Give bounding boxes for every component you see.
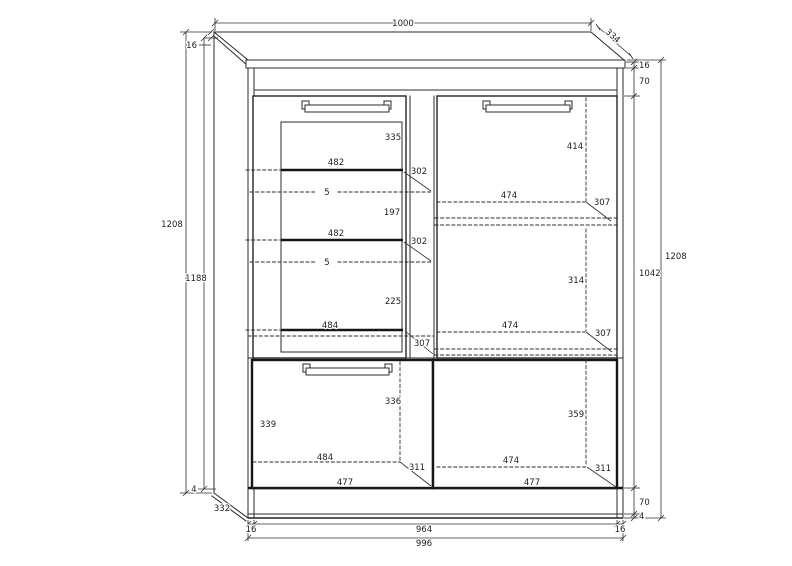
- lower-doors: [252, 360, 617, 488]
- dim-right-top-rail: 70: [639, 77, 650, 87]
- dim-right-door-width: 477: [524, 478, 540, 488]
- dim-glass-shelf1-glass: 5: [324, 188, 329, 198]
- dim-glass-shelf1-width: 482: [328, 158, 344, 168]
- dim-bottom-right-panel: 16: [615, 525, 626, 535]
- dim-top-depth: 334: [603, 27, 622, 45]
- technical-drawing-page: 1000 334 16 1208 1188 4 332 16 70 1042 1…: [0, 0, 792, 566]
- dim-glass-shelf2-width: 482: [328, 229, 344, 239]
- dim-bottom-total-width: 996: [416, 539, 432, 549]
- dim-glass-top-space: 335: [385, 133, 401, 143]
- dim-lowerleft-interior-width: 484: [317, 453, 333, 463]
- dim-lowerleft-door-width: 477: [337, 478, 353, 488]
- dim-right-top-space: 414: [567, 142, 583, 152]
- dim-top-panel-thickness: 16: [186, 41, 197, 51]
- dim-glass-shelf2-glass: 5: [324, 258, 329, 268]
- dim-top-width: 1000: [392, 19, 414, 29]
- dim-right-shelf1-width: 474: [501, 191, 517, 201]
- dim-right-panel-thickness: 16: [639, 61, 650, 71]
- dim-bottom-interior-width: 964: [416, 525, 432, 535]
- top-panel: [214, 32, 625, 68]
- dim-bottom-left-panel: 16: [246, 525, 257, 535]
- dim-left-base-gap: 4: [191, 485, 196, 495]
- dim-lowerleft-side-space: 339: [260, 420, 276, 430]
- dim-right-base-gap: 4: [639, 512, 644, 522]
- dim-right-bottom-rail: 70: [639, 498, 650, 508]
- dim-right-interior-height: 1042: [639, 269, 661, 279]
- dim-right-shelf3-width: 474: [503, 456, 519, 466]
- dim-left-inner-height: 1188: [185, 274, 207, 284]
- dim-right-shelf2-width: 474: [502, 321, 518, 331]
- dim-side-depth: 332: [214, 504, 230, 514]
- dim-glass-bottom-depth: 307: [414, 339, 430, 349]
- dim-lowerleft-top-space: 336: [385, 397, 401, 407]
- cabinet-dimension-drawing: 1000 334 16 1208 1188 4 332 16 70 1042 1…: [0, 0, 792, 566]
- dim-right-shelf2-depth: 307: [595, 329, 611, 339]
- dim-right-bottom-space: 359: [568, 410, 584, 420]
- dim-right-mid-space: 314: [568, 276, 584, 286]
- right-door: [437, 96, 617, 358]
- dim-right-total-height: 1208: [665, 252, 687, 262]
- glass-door: [253, 96, 406, 358]
- dim-lowerleft-depth: 311: [409, 463, 425, 473]
- dim-glass-mid-space: 197: [384, 208, 400, 218]
- dim-right-shelf1-depth: 307: [594, 198, 610, 208]
- dim-glass-bottom-width: 484: [322, 321, 338, 331]
- dim-glass-bottom-space: 225: [385, 297, 401, 307]
- dim-right-shelf3-depth: 311: [595, 464, 611, 474]
- dim-glass-shelf2-depth: 302: [411, 237, 427, 247]
- dim-glass-shelf1-depth: 302: [411, 167, 427, 177]
- dim-left-total-height: 1208: [161, 220, 183, 230]
